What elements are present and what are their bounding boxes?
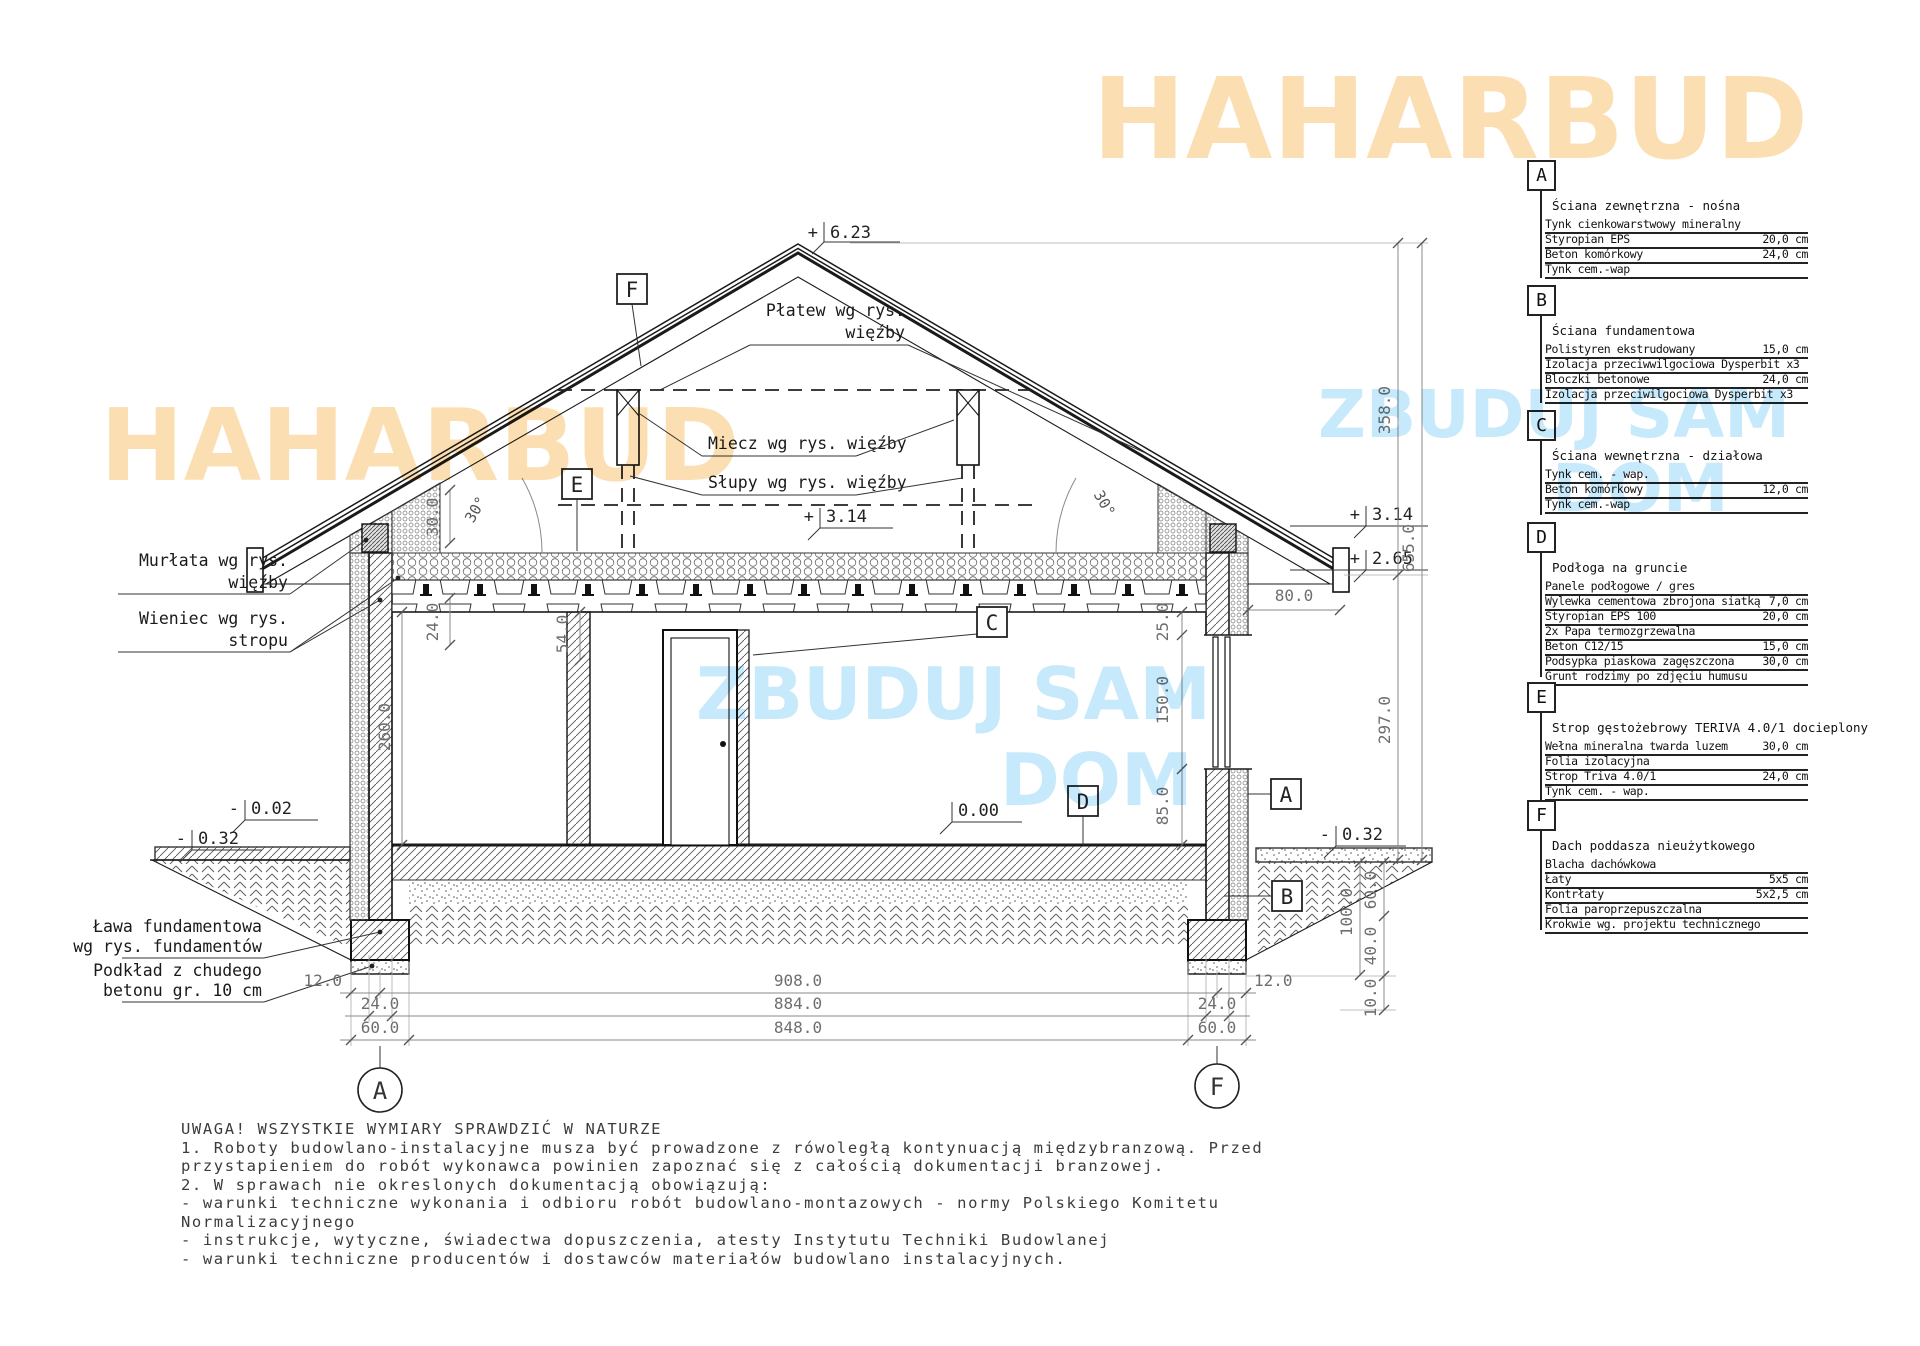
material-name: Beton komórkowy <box>1545 484 1643 497</box>
level-sign: + <box>1350 505 1360 525</box>
legend-section-c: C Ściana wewnętrzna - działowa Tynk cem.… <box>1540 410 1808 515</box>
legend-title: Podłoga na gruncie <box>1552 560 1687 575</box>
material-name: Strop Triva 4.0/1 <box>1545 771 1656 784</box>
material-value: 24,0 cm <box>1759 771 1808 784</box>
dim-half-left: 12.0 <box>303 971 342 990</box>
material-value: 30,0 cm <box>1759 656 1808 669</box>
dim-eaves-a: 30.0 <box>423 498 442 537</box>
dim-beam: 54.0 <box>553 615 572 654</box>
label-text: Podkład z chudego <box>93 961 262 980</box>
marker-e: E <box>571 473 584 497</box>
material-name: 2x Papa termozgrzewalna <box>1545 626 1695 639</box>
notes-line: - warunki techniczne producentów i dosta… <box>181 1250 1263 1269</box>
level-terrace: - 0.02 <box>229 799 318 832</box>
material-value <box>1805 389 1808 402</box>
material-name: Styropian EPS <box>1545 234 1630 247</box>
marker-d: D <box>1077 790 1090 814</box>
notes-title: UWAGA! WSZYSTKIE WYMIARY SPRAWDZIĆ W NAT… <box>181 1120 1263 1139</box>
dim-room-height: 260.0 <box>375 703 394 751</box>
material-name: Panele podłogowe / gres <box>1545 581 1695 594</box>
axis-left: A <box>373 1077 388 1105</box>
material-value <box>1805 264 1808 277</box>
dim-span-884: 884.0 <box>774 994 822 1013</box>
legend-row: Tynk cem.-wap <box>1545 499 1808 514</box>
material-name: Wylewka cementowa zbrojona siatką <box>1545 596 1760 609</box>
material-name: Podsypka piaskowa zagęszczona <box>1545 656 1734 669</box>
label-text: wg rys. fundamentów <box>73 937 262 956</box>
level-value: 3.14 <box>826 507 867 527</box>
label-text: Murłata wg rys. <box>139 551 288 570</box>
marker-f: F <box>626 278 639 302</box>
dim-eaves-b: 24.0 <box>423 603 442 642</box>
material-name: Wełna mineralna twarda luzem <box>1545 741 1728 754</box>
material-value: 15,0 cm <box>1759 641 1808 654</box>
level-ridge: + 6.23 <box>808 222 900 254</box>
dim-span-848: 848.0 <box>774 1018 822 1037</box>
legend-marker-c: C <box>1527 410 1556 441</box>
legend-title: Dach poddasza nieużytkowego <box>1552 838 1755 853</box>
label-text: Słupy wg rys. więźby <box>708 473 907 492</box>
window <box>1204 635 1252 769</box>
level-sign: - <box>229 799 239 819</box>
ceiling-slab <box>392 553 1206 612</box>
notes-line: - warunki techniczne wykonania i odbioru… <box>181 1194 1263 1213</box>
dim-wall-left: 24.0 <box>361 994 400 1013</box>
material-value: 30,0 cm <box>1759 741 1808 754</box>
dim-sill-height: 85.0 <box>1153 787 1172 826</box>
material-value <box>1805 581 1808 594</box>
material-name: Tynk cem. - wap. <box>1545 469 1649 482</box>
legend-marker-d: D <box>1527 522 1556 553</box>
axis-right: F <box>1210 1073 1224 1101</box>
label-text: więźby <box>845 323 905 342</box>
roof-angle-left: 30° <box>461 493 490 525</box>
material-value: 20,0 cm <box>1759 234 1808 247</box>
material-value: 20,0 cm <box>1759 611 1808 624</box>
notes-line: Normalizacyjnego <box>181 1213 1263 1232</box>
material-value: 7,0 cm <box>1766 596 1808 609</box>
level-value: 0.32 <box>198 829 239 849</box>
dim-wall-height: 297.0 <box>1375 696 1394 744</box>
dim-half-right: 12.0 <box>1254 971 1293 990</box>
legend-section-d: D Podłoga na gruncie Panele podłogowe / … <box>1540 522 1808 677</box>
material-name: Folia paroprzepuszczalna <box>1545 904 1702 917</box>
level-value: 3.14 <box>1372 505 1413 525</box>
notes-line: przystapieniem do robót wykonawca powini… <box>181 1157 1263 1176</box>
label-slupy: Słupy wg rys. więźby <box>630 473 962 495</box>
dim-roof-height: 358.0 <box>1375 386 1394 434</box>
level-value: 6.23 <box>830 223 871 243</box>
material-name: Polistyren ekstrudowany <box>1545 344 1695 357</box>
material-value <box>1805 756 1808 769</box>
material-name: Tynk cem.-wap <box>1545 499 1630 512</box>
label-text: Ława fundamentowa <box>92 917 262 936</box>
material-name: Krokwie wg. projektu technicznego <box>1545 919 1760 932</box>
level-value: 0.32 <box>1342 825 1383 845</box>
material-name: Kontrłaty <box>1545 889 1604 902</box>
level-value: 0.02 <box>251 799 292 819</box>
material-name: Bloczki betonowe <box>1545 374 1649 387</box>
legend-section-a: A Ściana zewnętrzna - nośna Tynk cienkow… <box>1540 160 1808 278</box>
material-value <box>1805 626 1808 639</box>
label-text: betonu gr. 10 cm <box>103 981 262 1000</box>
material-value <box>1805 499 1808 512</box>
material-value <box>1805 859 1808 872</box>
blueprint-page: 30° 30° + 6.23 + 3.14 + 3.14 + <box>0 0 1920 1346</box>
marker-b: B <box>1281 885 1294 909</box>
legend-row: Izolacja przeciwilgociowa Dysperbit x3 <box>1545 389 1808 404</box>
material-name: Blacha dachówkowa <box>1545 859 1656 872</box>
legend-section-b: B Ściana fundamentowa Polistyren ekstrud… <box>1540 285 1808 403</box>
roof <box>247 244 1349 592</box>
material-value <box>1805 219 1808 232</box>
dim-foundation-b: 40.0 <box>1361 927 1380 966</box>
dim-foot-left: 60.0 <box>361 1018 400 1037</box>
material-value: 5x2,5 cm <box>1753 889 1808 902</box>
material-value <box>1805 359 1808 372</box>
legend-marker-e: E <box>1527 682 1556 713</box>
dim-span-908: 908.0 <box>774 971 822 990</box>
material-name: Izolacja przeciwwilgociowa Dysperbit x3 <box>1545 359 1799 372</box>
wall-plate-right <box>1210 524 1236 552</box>
level-sign: + <box>1350 549 1360 569</box>
legend-marker-b: B <box>1527 285 1556 316</box>
material-name: Łaty <box>1545 874 1571 887</box>
material-value <box>1805 469 1808 482</box>
dim-wall-right: 24.0 <box>1198 994 1237 1013</box>
level-attic-mid: + 3.14 <box>804 507 893 540</box>
label-text: Miecz wg rys. więźby <box>708 434 907 453</box>
notes-line: 2. W sprawach nie okreslonych dokumentac… <box>181 1176 1263 1195</box>
dim-foundation-a: 60.0 <box>1361 871 1380 910</box>
dim-overhang: 80.0 <box>1275 586 1314 605</box>
material-name: Izolacja przeciwilgociowa Dysperbit x3 <box>1545 389 1793 402</box>
roof-truss-posts <box>558 390 1038 553</box>
legend-section-e: E Strop gęstożebrowy TERIVA 4.0/1 dociep… <box>1540 682 1808 800</box>
level-sign: - <box>176 829 186 849</box>
material-value: 24,0 cm <box>1759 374 1808 387</box>
material-legend: A Ściana zewnętrzna - nośna Tynk cienkow… <box>1540 0 1840 1000</box>
legend-row: Krokwie wg. projektu technicznego <box>1545 919 1808 934</box>
marker-c: C <box>986 611 999 635</box>
label-text: Wieniec wg rys. <box>139 609 288 628</box>
label-platew: Płatew wg rys. więźby <box>660 301 1150 455</box>
legend-section-f: F Dach poddasza nieużytkowego Blacha dac… <box>1540 800 1808 930</box>
door-handle <box>720 741 726 747</box>
material-name: Folia izolacyjna <box>1545 756 1649 769</box>
label-text: stropu <box>228 631 288 650</box>
dim-foot-right: 60.0 <box>1198 1018 1237 1037</box>
legend-title: Ściana fundamentowa <box>1552 323 1695 338</box>
material-value <box>1805 919 1808 932</box>
legend-row: Tynk cem. - wap. <box>1545 786 1808 801</box>
level-sign: + <box>804 507 814 527</box>
legend-title: Strop gęstożebrowy TERIVA 4.0/1 docieplo… <box>1552 720 1868 735</box>
dim-lean-concrete: 10.0 <box>1361 979 1380 1018</box>
material-value: 24,0 cm <box>1759 249 1808 262</box>
material-value: 12,0 cm <box>1759 484 1808 497</box>
material-name: Tynk cem.-wap <box>1545 264 1630 277</box>
general-notes: UWAGA! WSZYSTKIE WYMIARY SPRAWDZIĆ W NAT… <box>181 1120 1263 1268</box>
notes-line: - instrukcje, wytyczne, świadectwa dopus… <box>181 1231 1263 1250</box>
door <box>663 630 737 845</box>
material-value: 5x5 cm <box>1766 874 1808 887</box>
legend-title: Ściana zewnętrzna - nośna <box>1552 198 1740 213</box>
material-name: Tynk cienkowarstwowy mineralny <box>1545 219 1741 232</box>
dim-window-height: 150.0 <box>1153 676 1172 724</box>
material-value <box>1805 786 1808 799</box>
material-value <box>1805 904 1808 917</box>
dim-foundation-total: 100.0 <box>1337 888 1356 936</box>
legend-marker-f: F <box>1527 800 1556 831</box>
material-name: Beton C12/15 <box>1545 641 1623 654</box>
material-name: Styropian EPS 100 <box>1545 611 1656 624</box>
level-value: 0.00 <box>958 801 999 821</box>
level-floor: 0.00 <box>940 801 1022 834</box>
label-text: Płatew wg rys. <box>766 301 905 320</box>
notes-line: 1. Roboty budowlano-instalacyjne musza b… <box>181 1139 1263 1158</box>
dim-over-window: 25.0 <box>1153 603 1172 642</box>
marker-a: A <box>1280 783 1293 807</box>
legend-marker-a: A <box>1527 160 1556 191</box>
roof-angle-right: 30° <box>1090 487 1119 519</box>
material-name: Beton komórkowy <box>1545 249 1643 262</box>
dim-total-height: 655.0 <box>1399 524 1418 572</box>
legend-row: Tynk cem.-wap <box>1545 264 1808 279</box>
label-text: więźby <box>228 573 288 592</box>
label-miecz: Miecz wg rys. więźby <box>640 414 954 456</box>
level-sign: - <box>1320 825 1330 845</box>
legend-title: Ściana wewnętrzna - działowa <box>1552 448 1763 463</box>
level-sign: + <box>808 223 818 243</box>
material-name: Tynk cem. - wap. <box>1545 786 1649 799</box>
material-value: 15,0 cm <box>1759 344 1808 357</box>
axis-markers: A F <box>358 1046 1239 1112</box>
